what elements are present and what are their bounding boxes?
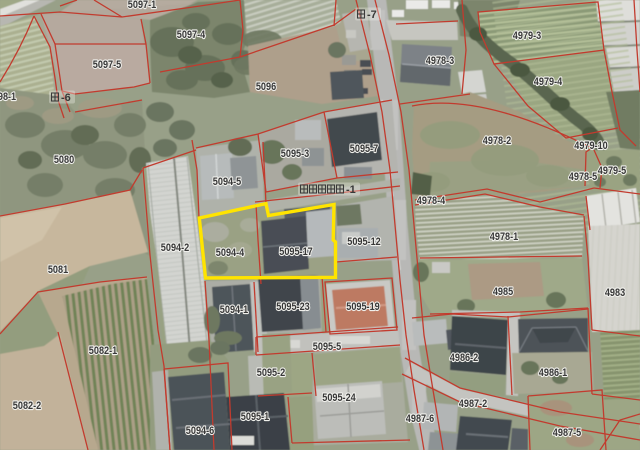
svg-text:5082-2: 5082-2 [13,400,42,412]
svg-text:5094-2: 5094-2 [161,242,190,254]
svg-text:4979-5: 4979-5 [598,165,627,177]
svg-text:5094-4: 5094-4 [216,247,245,259]
svg-text:4979-3: 4979-3 [513,30,542,42]
svg-text:5095-23: 5095-23 [276,301,310,313]
svg-text:4978-5: 4978-5 [569,171,598,183]
svg-text:4978-1: 4978-1 [490,231,519,243]
svg-text:4987-2: 4987-2 [459,398,488,410]
svg-text:4985: 4985 [493,286,514,298]
svg-text:5095-19: 5095-19 [346,301,380,313]
svg-text:5096: 5096 [256,81,277,93]
svg-text:5094-6: 5094-6 [186,425,215,437]
svg-text:5094-5: 5094-5 [213,176,242,188]
svg-text:5081: 5081 [48,264,69,276]
svg-text:5094-1: 5094-1 [220,304,249,316]
svg-text:5095-2: 5095-2 [257,367,286,379]
svg-text:5095-3: 5095-3 [281,148,310,160]
svg-text:-6: -6 [61,92,71,104]
svg-text:5097-1: 5097-1 [128,0,157,11]
svg-text:5082-1: 5082-1 [89,345,118,357]
svg-text:4979-10: 4979-10 [574,140,608,152]
svg-text:4987-5: 4987-5 [553,427,582,439]
svg-text:5097-4: 5097-4 [177,29,206,41]
svg-text:5095-1: 5095-1 [241,411,270,423]
svg-text:4983: 4983 [605,287,626,299]
svg-text:4978-3: 4978-3 [426,55,455,67]
svg-text:5080: 5080 [54,154,75,166]
svg-text:98-1: 98-1 [0,91,16,103]
svg-text:-1: -1 [346,184,356,196]
svg-text:5095-24: 5095-24 [322,392,356,404]
svg-text:4978-4: 4978-4 [417,195,446,207]
svg-text:5095-7: 5095-7 [350,143,379,155]
svg-text:4987-6: 4987-6 [406,413,435,425]
svg-text:5097-5: 5097-5 [93,59,122,71]
svg-text:5095-17: 5095-17 [279,246,313,258]
svg-text:-7: -7 [367,9,377,21]
svg-text:4986-1: 4986-1 [539,367,568,379]
svg-text:5095-5: 5095-5 [313,341,342,353]
svg-text:4978-2: 4978-2 [483,135,512,147]
svg-text:4979-4: 4979-4 [534,76,563,88]
svg-text:4986-2: 4986-2 [450,352,479,364]
svg-text:5095-12: 5095-12 [347,236,381,248]
